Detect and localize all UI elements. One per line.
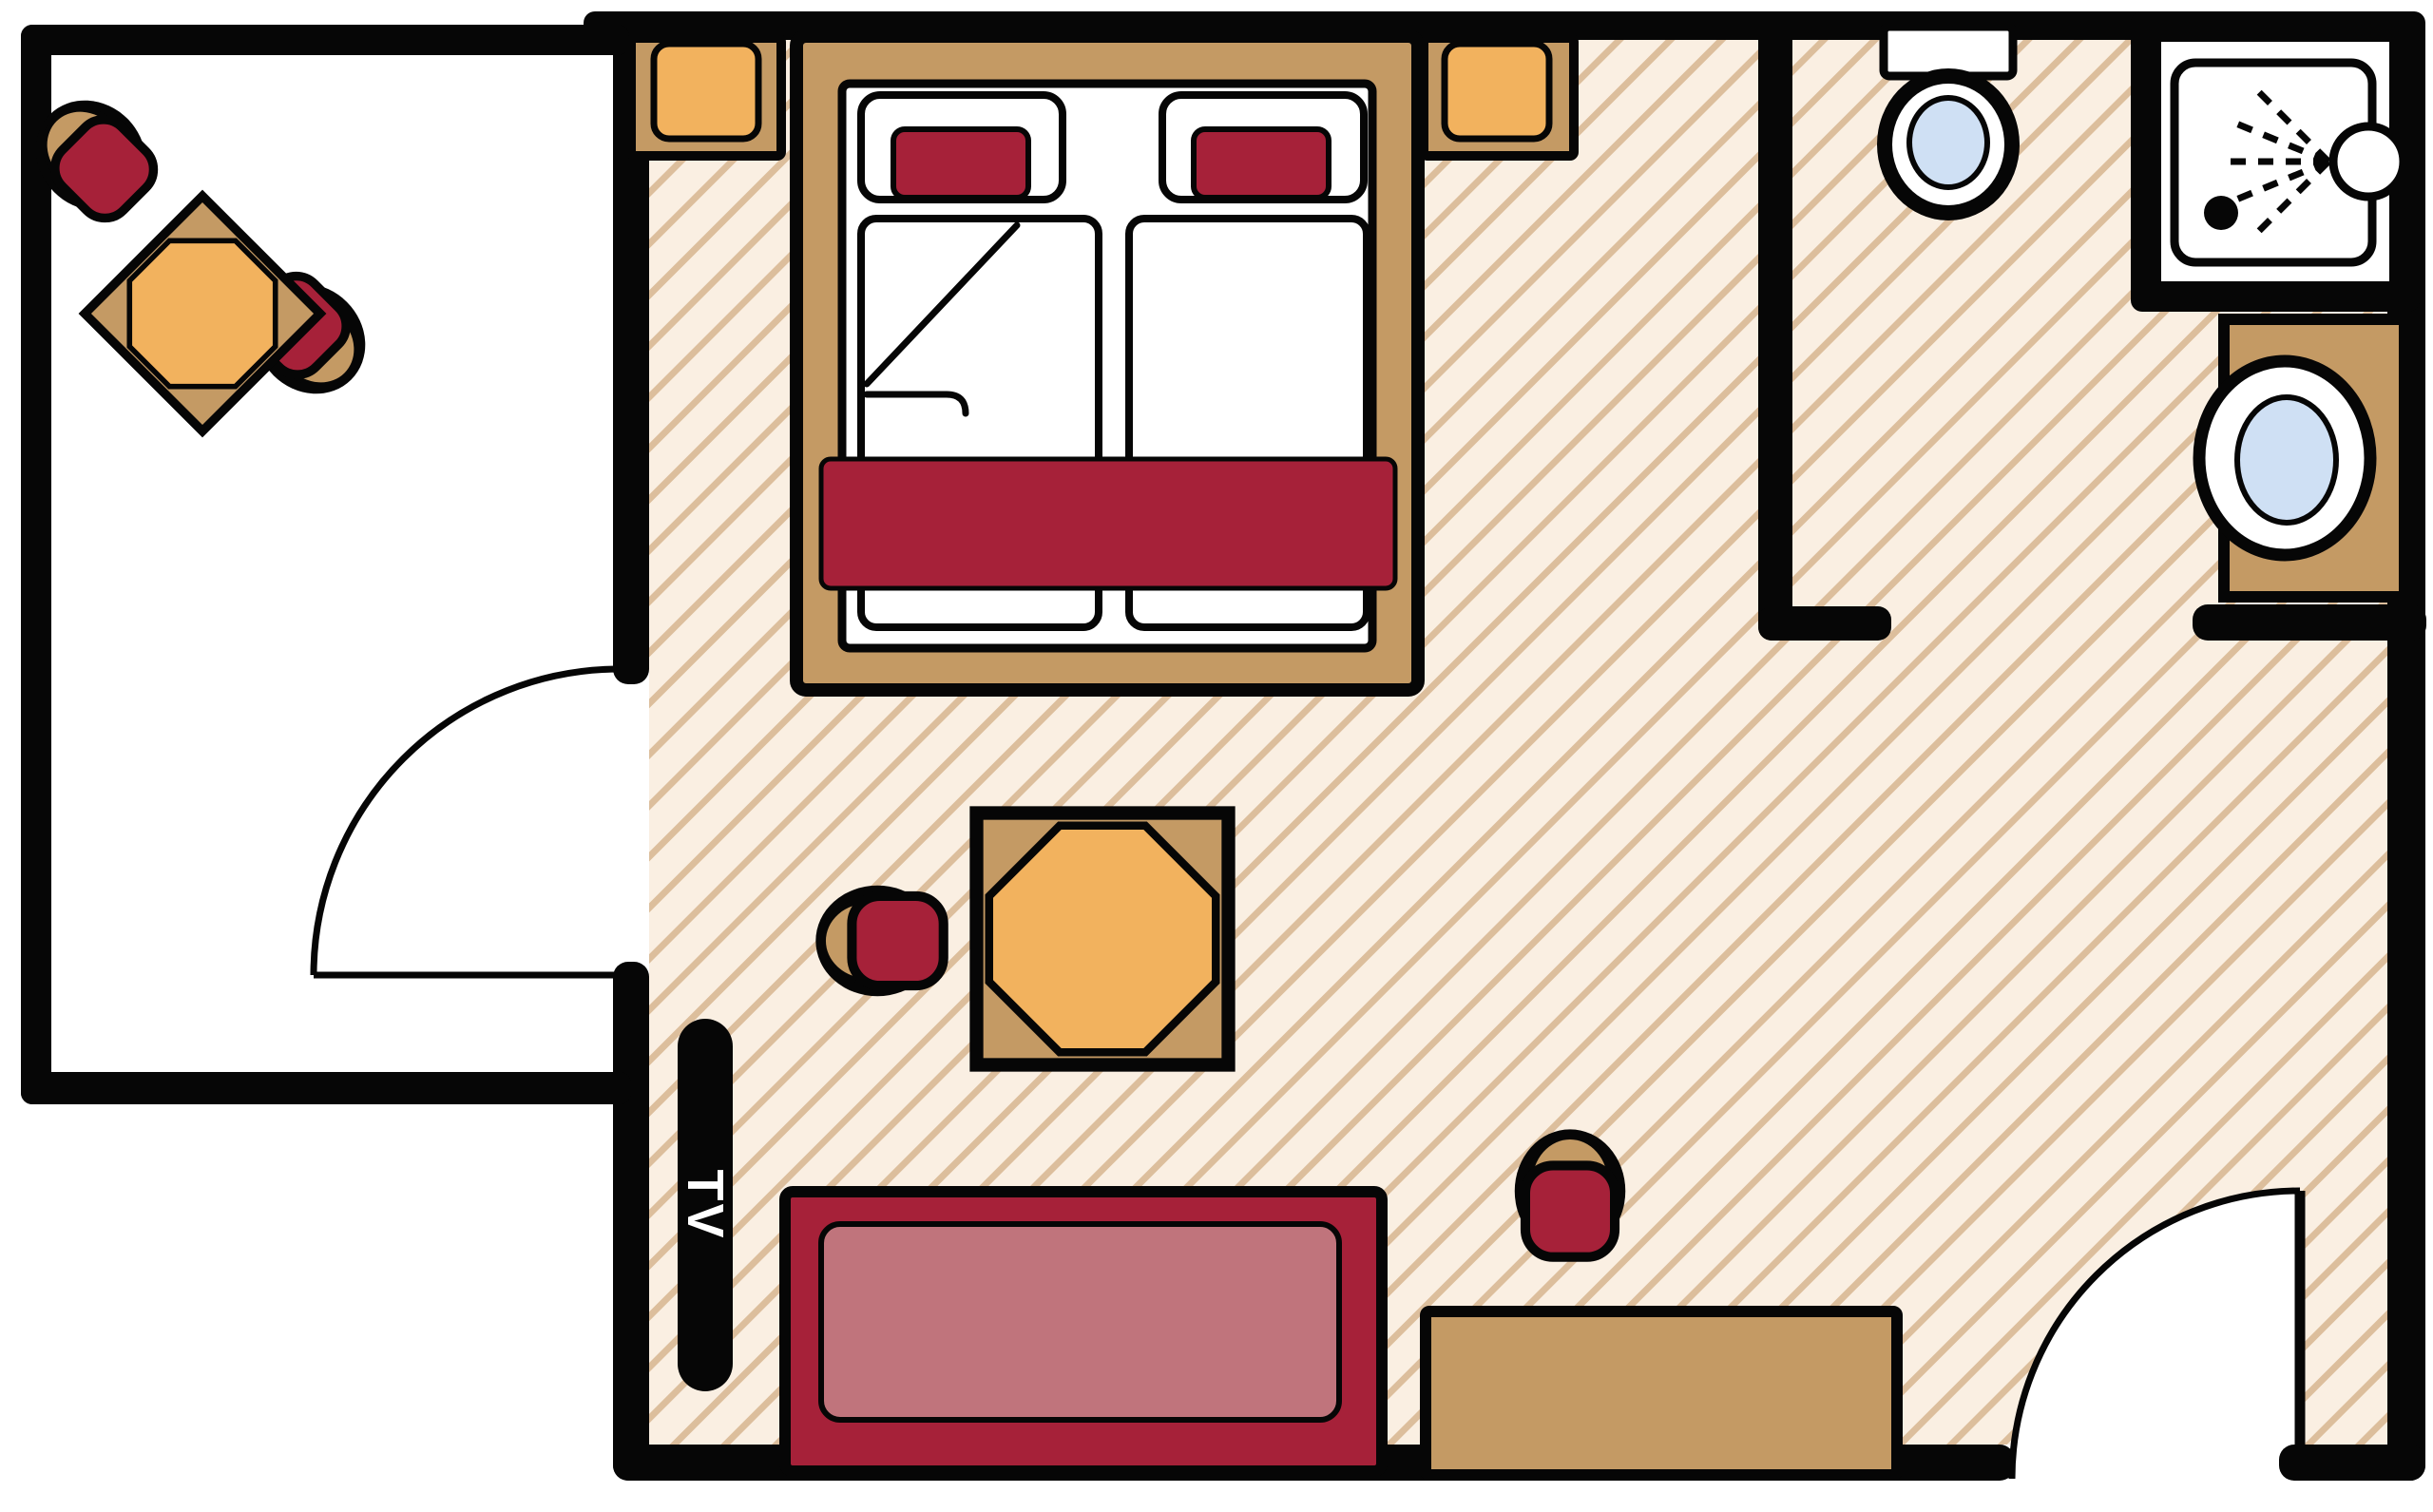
shower-head [2333,126,2404,197]
desk-chair [1515,1129,1625,1256]
living-chair [815,886,943,996]
shower [2131,11,2420,312]
bed-blanket [821,459,1395,588]
sofa-cushion [821,1224,1339,1420]
bathroom-partition-wall [1758,13,1792,641]
toilet [1877,27,2020,220]
living-table [977,813,1229,1065]
bathroom-partition-stub [1758,606,1891,641]
shower-drain [2204,196,2238,230]
desk [1426,1311,1897,1475]
balcony-left-wall [21,25,51,1104]
floor-plan-canvas: TV [0,0,2433,1512]
pillow-left-cushion [893,129,1028,198]
balcony-bottom-wall [21,1072,631,1104]
bathroom-sink-side-stub [2193,604,2426,641]
tv-label: TV [677,1169,734,1240]
balcony-floor [51,55,613,1072]
left-wall-lower-segment [613,962,649,1481]
washbasin [2199,319,2404,597]
washbasin-basin [2237,397,2336,523]
pillow-right-cushion [1194,129,1329,198]
sofa [785,1192,1382,1471]
tv-unit: TV [677,1019,734,1391]
balcony-top-wall [21,25,629,55]
double-bed [796,36,1418,690]
nightstand-left [631,38,781,156]
toilet-seat [1909,98,1987,187]
nightstand-right [1424,38,1574,156]
